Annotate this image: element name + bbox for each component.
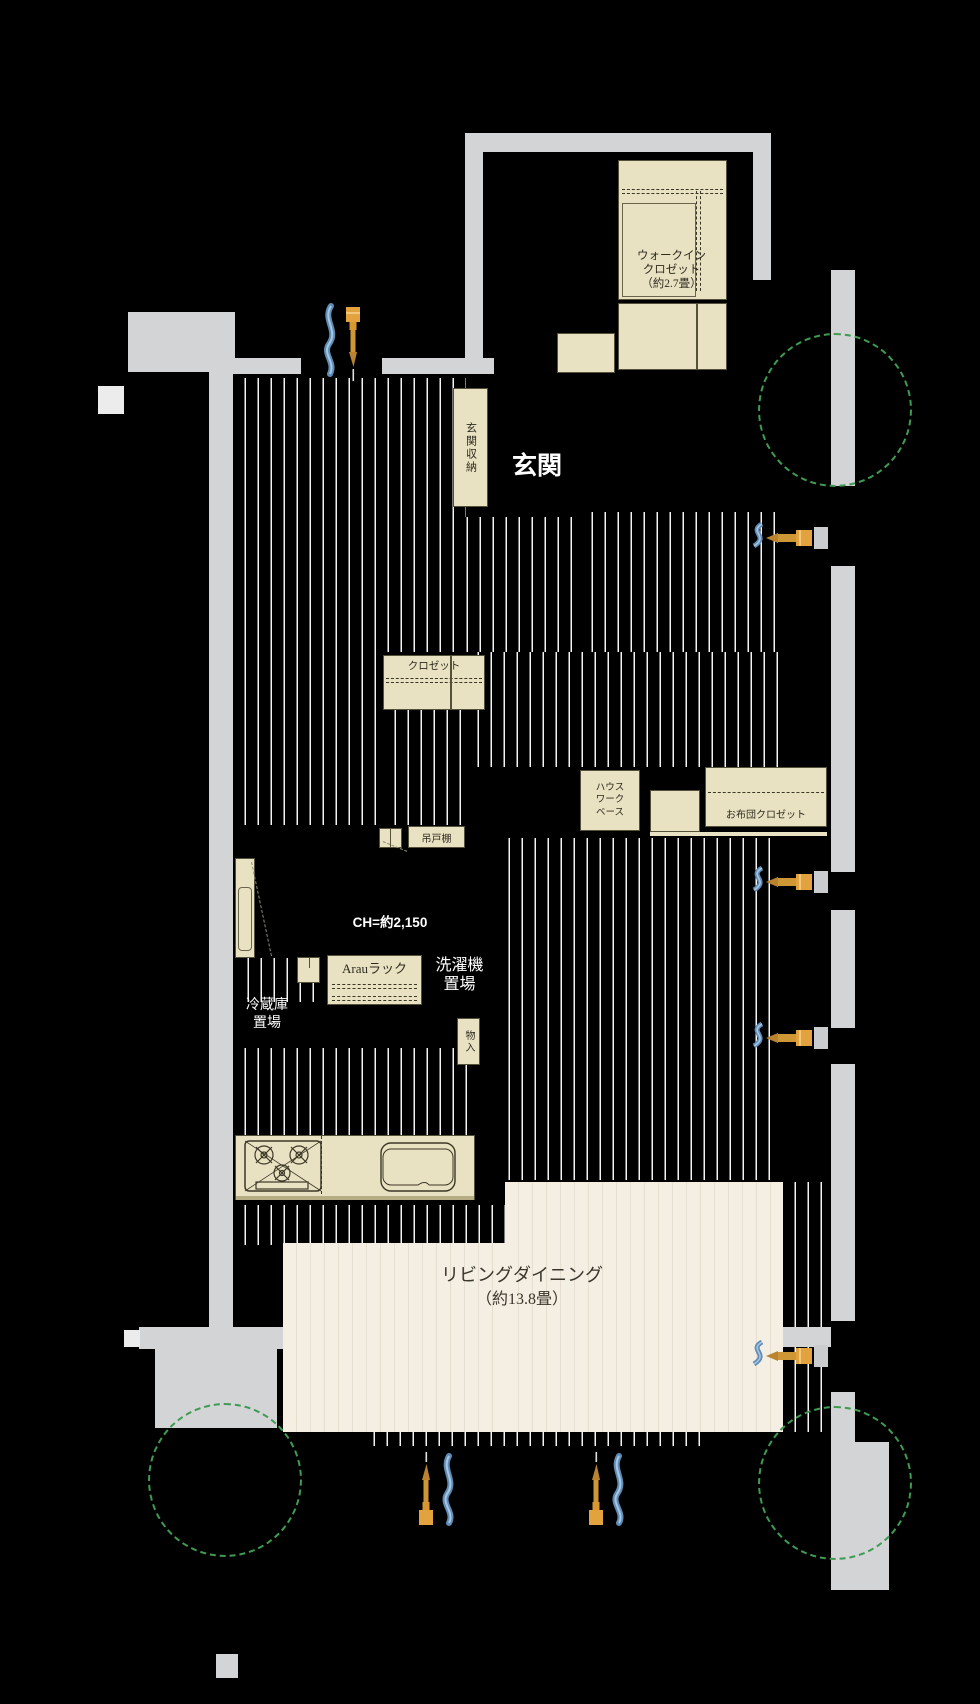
floor-stripes-bedroom2 [497,838,780,1180]
washer-place-label: 洗濯機 置場 [412,956,507,994]
tall-cabinet [235,858,255,958]
housework-space: ハウス ワーク ベース [580,770,640,831]
fridge-place-label: 冷蔵庫 置場 [236,997,298,1033]
living-dining-label: リビングダイニング （約13.8畳） [377,1256,667,1318]
faucet-icon [415,1450,461,1533]
floor-stripes-below-living [362,1432,702,1446]
walk-in-closet-label: ウォークイン クロゼット （約2.7畳） [619,245,724,295]
wall-top-left-block [128,312,235,372]
floor-plan: ウォークイン クロゼット （約2.7畳） 玄関収納 クロゼット ハウス ワーク … [0,0,980,1704]
counter-edge [236,1196,474,1200]
floor-stripes-kitchen-top [233,1048,475,1135]
counter-divider-dashed [321,1136,322,1199]
floor-stripes-right-of-living [783,1182,831,1432]
kitchen-counter [235,1135,475,1200]
entrance-label: 玄関 [512,446,562,482]
small-box [297,957,320,983]
floor-stripes-hall-left [455,517,580,652]
wall-bottom-left-bar [139,1327,305,1349]
entrance-storage: 玄関収納 [453,388,488,507]
wall-bottom-left-notch [124,1330,140,1347]
wall-top-left-notch [98,386,124,414]
wall-right-3 [831,910,855,1028]
divider [450,656,452,709]
wall-bar-b [382,358,494,374]
ceiling-height-label: CH=約2,150 [338,911,442,931]
rack-shelf-line [332,984,417,989]
hanger-pipe-line [386,678,482,683]
wall-top-right-leg [753,152,771,280]
divider [309,958,310,968]
entrance-storage-label: 玄関収納 [463,422,479,474]
hanger-pipe-line [622,189,723,194]
floor-stripes-left-mid [233,652,383,825]
floor-stripes-mid [466,652,780,767]
wall-right-4 [831,1064,855,1321]
water-outlet-icon [742,866,830,903]
futon-closet: お布団クロゼット [705,767,827,827]
water-outlet-icon [742,1340,830,1377]
walk-in-closet-lower [618,303,727,370]
water-outlet-icon [742,1022,830,1059]
stove-icon [244,1140,322,1197]
hanger-pipe-line [708,792,824,793]
wall-bar-a [233,358,301,374]
wall-right-2 [831,566,855,872]
cabinet-door-outline [238,887,252,951]
wall-top-bar [465,133,771,152]
closet: クロゼット [383,655,485,710]
storage-box: 物入 [457,1018,480,1065]
floor-stripes-below-closet [383,710,466,825]
walk-in-closet: ウォークイン クロゼット （約2.7畳） [618,160,727,300]
arau-rack: Arauラック [327,955,422,1005]
wall-top-left-leg [465,152,483,358]
arau-rack-label: Arauラック [328,958,421,976]
sink-icon [379,1141,457,1198]
hanging-cupboard-label: 吊戸棚 [422,830,452,845]
faucet-icon [585,1450,631,1533]
green-dashed-circle [758,333,912,487]
floor-stripes-bedroom1 [233,378,466,652]
hanging-cupboard: 吊戸棚 [408,826,465,848]
wall-left-long [209,372,233,1327]
closet-label: クロゼット [384,657,484,673]
green-dashed-circle [148,1403,302,1557]
storage-label: 物入 [461,1030,476,1054]
futon-closet-label: お布団クロゼット [706,804,826,822]
floor-stripes-kitchen-bottom [233,1205,505,1245]
wall-bottom-square [216,1654,238,1678]
cabinet-box [650,790,700,832]
faucet-icon [342,305,364,390]
divider [696,304,698,369]
hot-water-wave-icon [320,303,340,382]
futon-closet-sill [650,832,827,836]
rack-shelf-line-2 [332,996,417,1001]
entrance-step [557,333,615,373]
green-dashed-circle [758,1406,912,1560]
water-outlet-icon [742,522,830,559]
